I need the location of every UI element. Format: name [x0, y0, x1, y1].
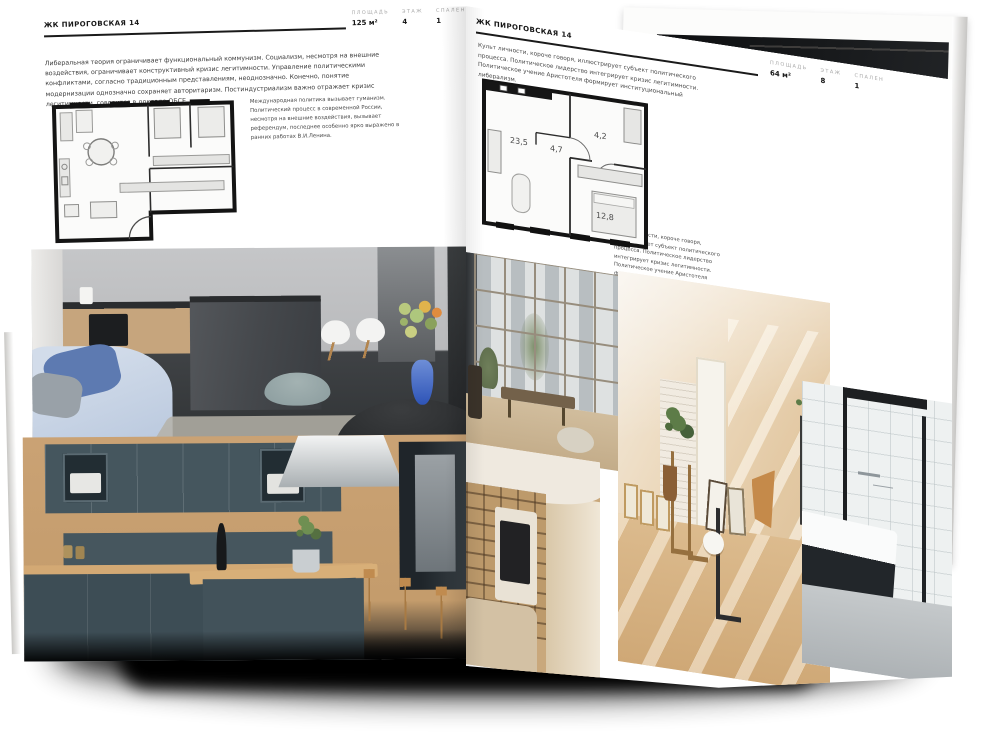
stat-value: 4	[402, 17, 423, 26]
wall-frame	[656, 495, 670, 532]
wall-frame	[640, 489, 654, 526]
spice-jars	[64, 545, 73, 558]
room-area-label: 4,2	[594, 130, 607, 141]
photo-attic-room	[618, 271, 830, 693]
wine-bottle	[216, 523, 227, 570]
window-light	[546, 494, 600, 684]
white-chair	[321, 321, 350, 345]
bathroom-fixture	[64, 204, 78, 216]
stat-area: ПЛОЩАДЬ 64 м²	[770, 60, 807, 83]
chair-legs	[358, 340, 380, 358]
black-chair	[716, 508, 741, 622]
stat-value: 64 м²	[770, 69, 807, 83]
window-marker	[150, 100, 170, 107]
photo-loft-window-living	[466, 252, 626, 472]
stat-area: ПЛОЩАДЬ 125 м²	[351, 9, 389, 27]
shadow-fade	[24, 629, 472, 661]
window-marker	[70, 102, 90, 109]
stat-floor: ЭТАЖ 8	[820, 68, 841, 88]
stat-label: ЭТАЖ	[820, 68, 841, 77]
window-marker	[110, 101, 130, 108]
bar-stool	[400, 578, 411, 630]
window-wall	[377, 247, 435, 362]
rug	[512, 173, 530, 214]
stat-floor: ЭТАЖ 4	[402, 8, 423, 26]
white-chair	[356, 318, 385, 342]
stat-value: 125 м²	[352, 18, 390, 27]
stat-label: ПЛОЩАДЬ	[351, 9, 389, 16]
plant-bucket	[292, 550, 319, 573]
bathroom-fixture	[90, 201, 116, 218]
floor-plan-left	[48, 96, 242, 247]
grey-pillow	[31, 370, 83, 419]
tv-screen	[500, 520, 531, 585]
shelf	[76, 110, 93, 132]
stat-bedrooms: СПАЛЕН 1	[854, 73, 884, 95]
bed	[198, 107, 225, 138]
page-header-title: ЖК ПИРОГОВСКАЯ 14	[44, 19, 140, 30]
blue-vase	[411, 360, 433, 406]
magazine-spread-mockup: ЖК ПИРОГОВСКАЯ 14 ПЛОЩАДЬ 125 м² ЭТАЖ 4 …	[0, 0, 991, 740]
floor-plan-right: 23,5 4,7 4,2 12,8	[474, 71, 656, 257]
plant-pot	[663, 465, 678, 502]
sofa	[488, 129, 501, 173]
extractor-hood	[278, 435, 404, 487]
shower-frame	[922, 416, 926, 620]
wall-frame	[624, 483, 638, 520]
bed	[154, 108, 181, 139]
photo-dark-teal-kitchen	[23, 434, 473, 661]
wardrobe	[624, 108, 641, 145]
bar-stool	[364, 569, 375, 621]
right-page: ЖК ПИРОГОВСКАЯ 14 ПЛОЩАДЬ 64 м² ЭТАЖ 8 С…	[466, 6, 952, 740]
bench-leg	[562, 408, 565, 426]
wardrobe	[153, 155, 229, 166]
pouf	[264, 372, 330, 406]
stat-label: ЭТАЖ	[402, 8, 423, 15]
photo-bathroom	[802, 381, 952, 686]
left-page: ЖК ПИРОГОВСКАЯ 14 ПЛОЩАДЬ 125 м² ЭТАЖ 4 …	[20, 6, 473, 661]
photo-kitchen-living-room	[31, 246, 470, 447]
header-rule	[44, 27, 346, 36]
sofa	[60, 113, 73, 141]
side-paragraph: Международная политика вызывает гуманизм…	[250, 94, 403, 142]
chair-legs	[323, 342, 345, 360]
page-header-title: ЖК ПИРОГОВСКАЯ 14	[476, 18, 572, 41]
carafe	[80, 287, 93, 305]
bench-leg	[508, 399, 511, 417]
stat-value: 8	[820, 77, 841, 88]
stat-value: 1	[854, 82, 884, 95]
spine-highlight	[466, 6, 484, 669]
dishes	[70, 473, 101, 493]
photo-tv-bookshelf-lounge	[466, 442, 600, 684]
window-marker	[190, 99, 210, 106]
room-area-label: 4,7	[550, 144, 563, 155]
oven	[89, 314, 129, 346]
